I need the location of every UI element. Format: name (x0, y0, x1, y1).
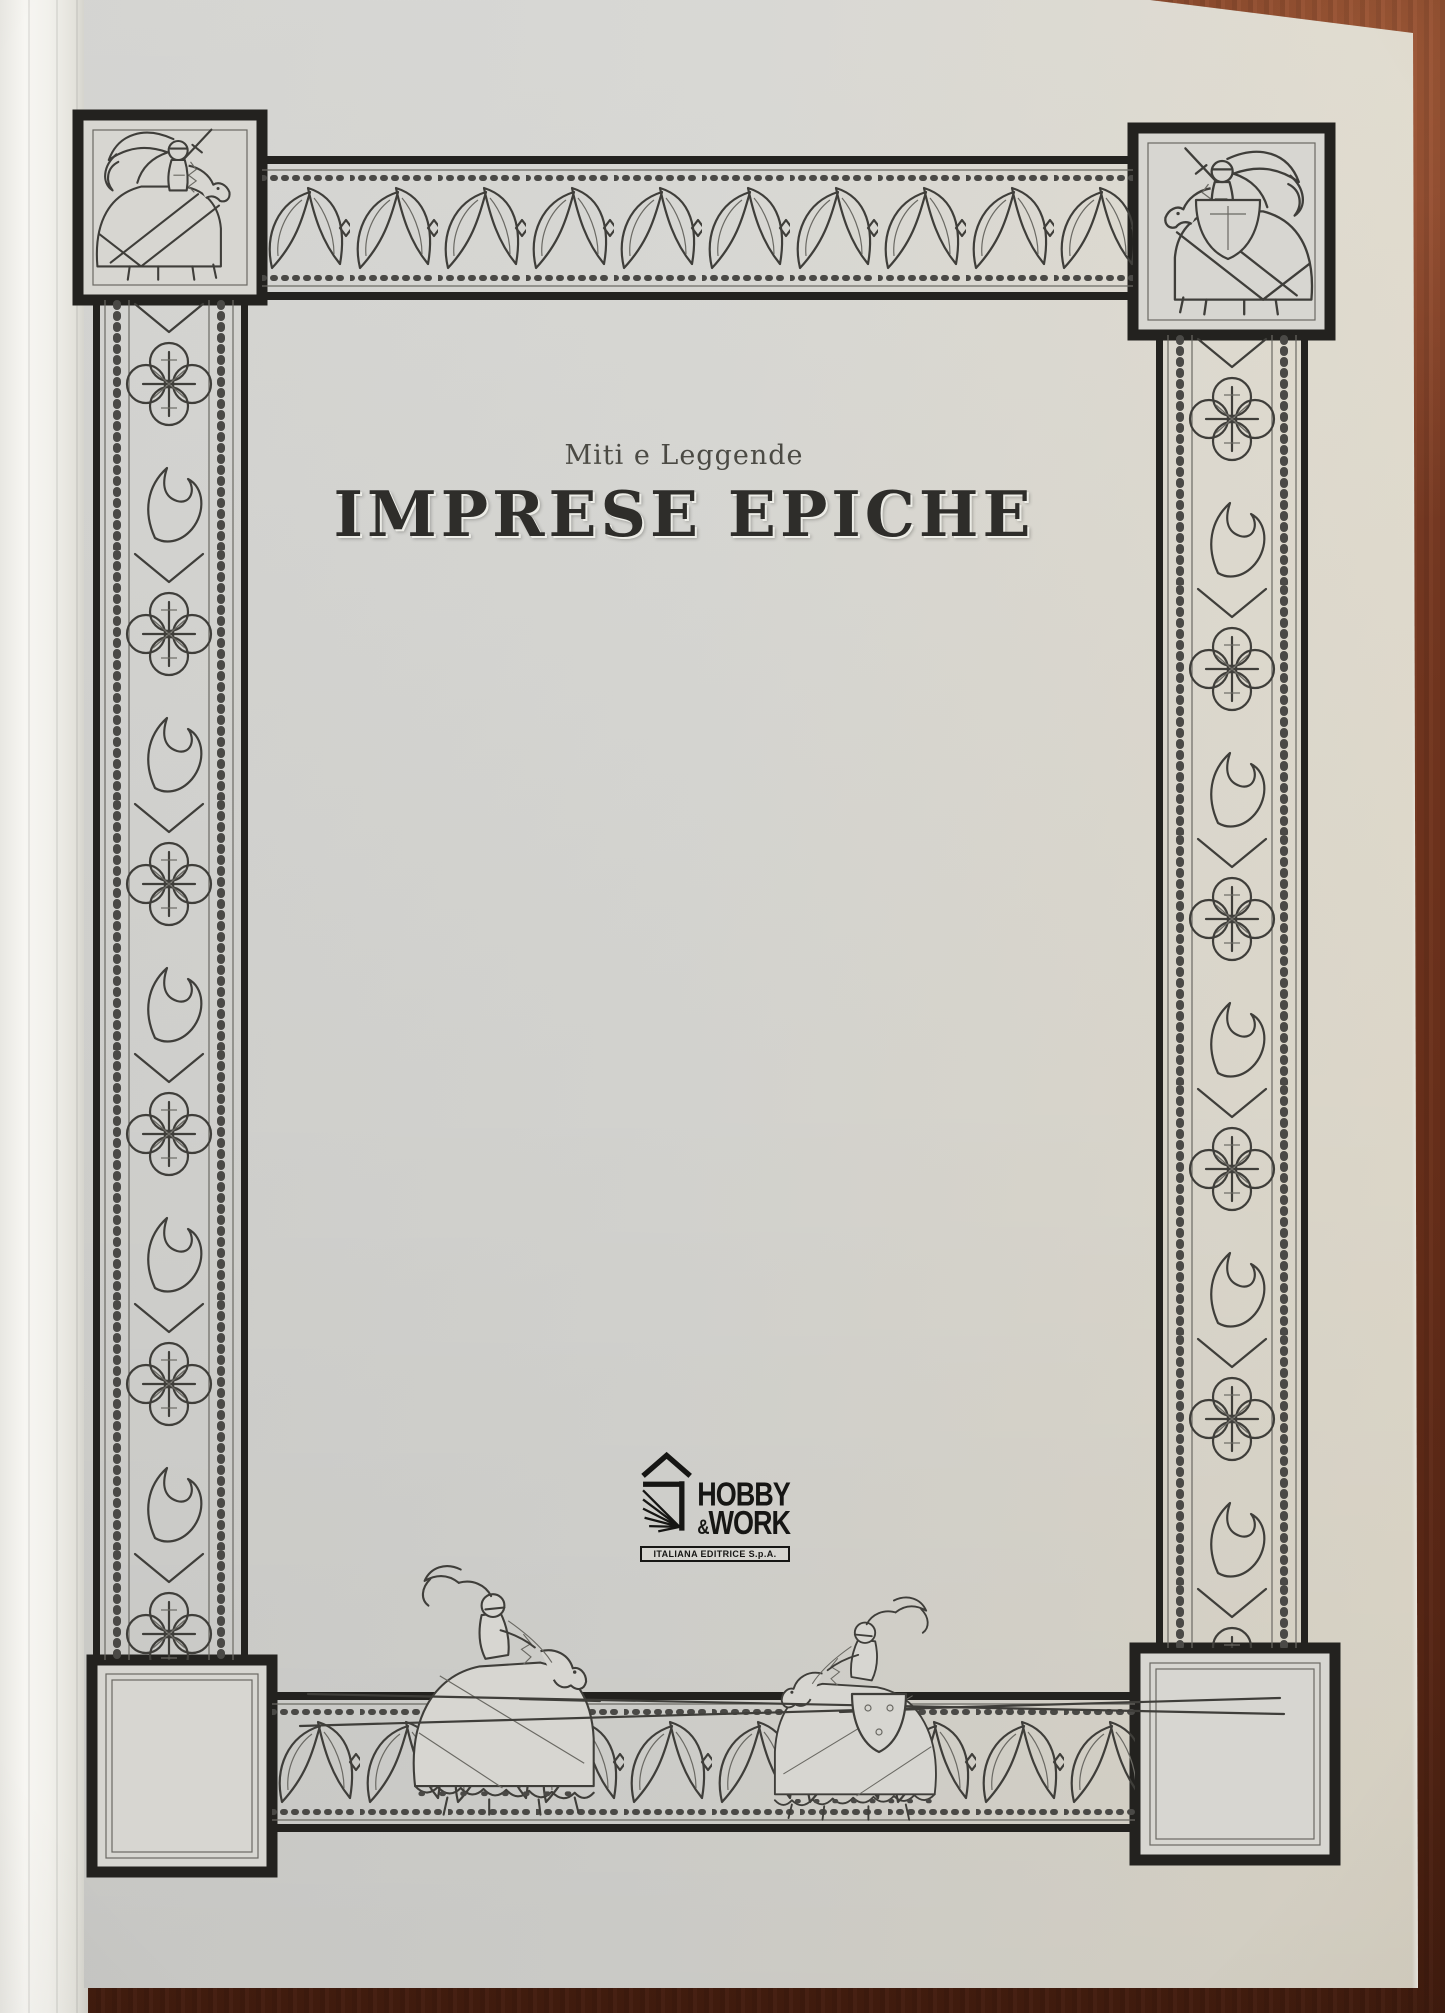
corner-top-left (78, 115, 262, 300)
jousting-knight-left-icon (414, 1566, 594, 1815)
book-title: IMPRESE EPICHE (104, 477, 1264, 551)
corner-top-right (1133, 128, 1330, 335)
bottom-ornamental-band (272, 1692, 1135, 1832)
hobby-and-work-house-icon (640, 1442, 693, 1544)
series-title: Miti e Leggende (104, 440, 1264, 471)
publisher-name-bottom: WORK (709, 1504, 790, 1542)
publisher-ampersand: & (697, 1515, 708, 1539)
top-ornamental-band (258, 156, 1137, 300)
corner-bottom-right-empty-panel (1135, 1648, 1335, 1860)
corner-bottom-left-empty-panel (92, 1660, 272, 1872)
publisher-subtitle: ITALIANA EDITRICE S.p.A. (640, 1546, 790, 1562)
ornamental-border-frame (0, 0, 1445, 2013)
publisher-name: HOBBY &WORK (697, 1480, 790, 1538)
photo-of-book-title-page: Miti e Leggende IMPRESE EPICHE HOBBY (0, 0, 1445, 2013)
publisher-logo: HOBBY &WORK ITALIANA EDITRICE S.p.A. (640, 1442, 790, 1562)
